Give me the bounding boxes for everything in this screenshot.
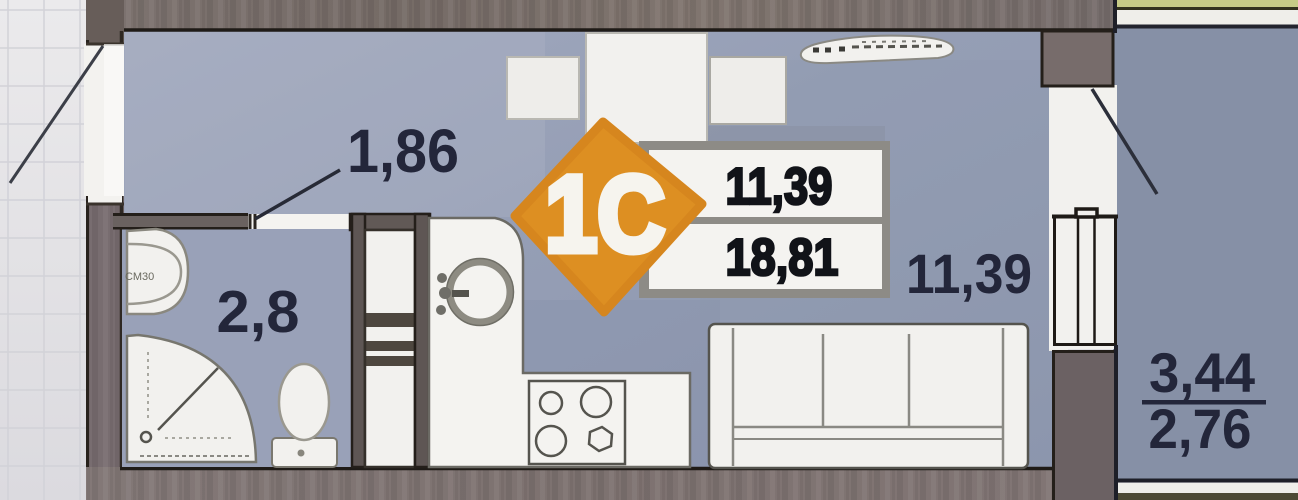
svg-text:1C: 1C (545, 153, 665, 274)
svg-text:3,44: 3,44 (1149, 341, 1255, 404)
svg-text:18,81: 18,81 (726, 229, 839, 287)
svg-text:11,39: 11,39 (726, 158, 833, 216)
svg-text:СМ30: СМ30 (125, 271, 154, 283)
svg-text:2,8: 2,8 (217, 279, 300, 345)
svg-text:2,76: 2,76 (1149, 397, 1252, 460)
svg-text:11,39: 11,39 (906, 242, 1032, 305)
svg-text:1,86: 1,86 (347, 117, 459, 185)
